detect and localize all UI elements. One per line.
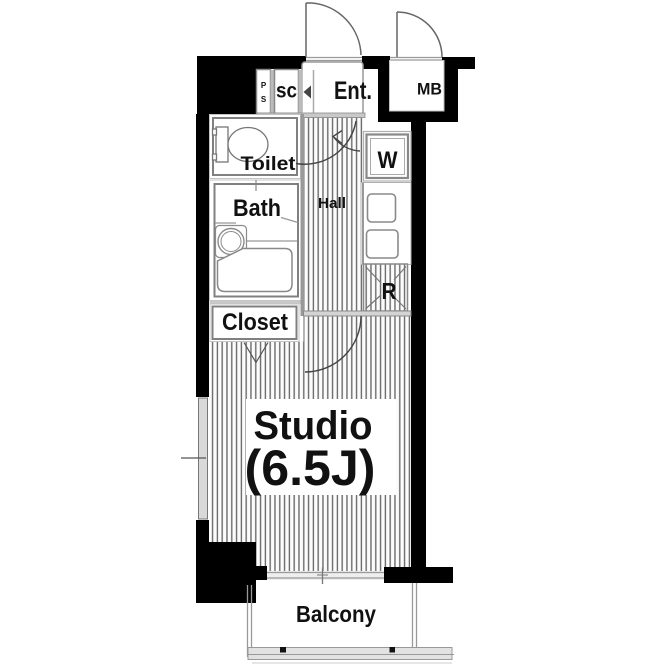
svg-text:Balcony: Balcony bbox=[296, 601, 376, 627]
svg-text:W: W bbox=[378, 147, 398, 174]
svg-text:Toilet: Toilet bbox=[241, 154, 297, 175]
svg-text:S: S bbox=[261, 95, 267, 104]
svg-text:Bath: Bath bbox=[233, 195, 281, 222]
svg-text:P: P bbox=[261, 81, 267, 90]
svg-text:(6.5J): (6.5J) bbox=[245, 440, 376, 496]
svg-text:Ent.: Ent. bbox=[334, 77, 372, 105]
svg-text:R: R bbox=[382, 278, 397, 304]
svg-text:Hall: Hall bbox=[318, 195, 346, 212]
svg-text:sc: sc bbox=[276, 80, 297, 103]
svg-text:Closet: Closet bbox=[222, 309, 288, 336]
svg-text:MB: MB bbox=[417, 81, 442, 99]
